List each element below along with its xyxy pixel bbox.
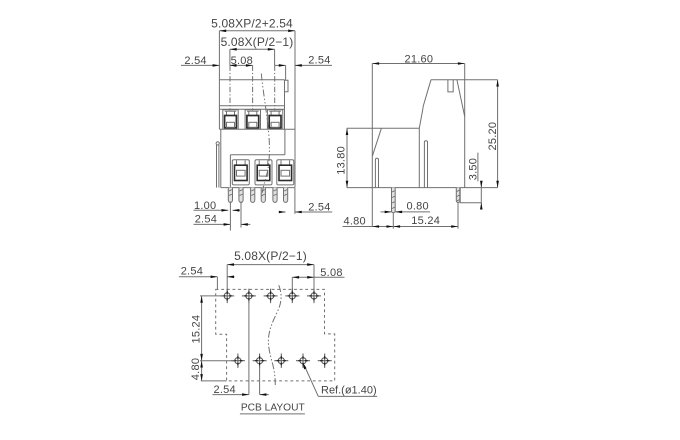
svg-text:5.08XP/2+2.54: 5.08XP/2+2.54 xyxy=(211,16,293,30)
svg-text:4.80: 4.80 xyxy=(344,215,366,227)
svg-text:2.54: 2.54 xyxy=(308,55,330,67)
svg-text:4.80: 4.80 xyxy=(190,358,202,380)
svg-text:3.50: 3.50 xyxy=(467,158,479,180)
svg-text:2.54: 2.54 xyxy=(181,265,203,277)
svg-text:5.08X(P/2−1): 5.08X(P/2−1) xyxy=(221,35,294,49)
svg-text:Ref.(ø1.40): Ref.(ø1.40) xyxy=(321,385,377,397)
svg-text:13.80: 13.80 xyxy=(335,146,347,175)
svg-text:2.54: 2.54 xyxy=(214,384,236,396)
svg-text:PCB LAYOUT: PCB LAYOUT xyxy=(241,403,305,414)
svg-text:0.80: 0.80 xyxy=(407,200,429,212)
svg-text:2.54: 2.54 xyxy=(195,213,217,225)
svg-text:5.08X(P/2−1): 5.08X(P/2−1) xyxy=(234,249,307,263)
svg-text:15.24: 15.24 xyxy=(190,315,202,344)
svg-text:25.20: 25.20 xyxy=(487,122,499,151)
svg-text:15.24: 15.24 xyxy=(411,215,440,227)
